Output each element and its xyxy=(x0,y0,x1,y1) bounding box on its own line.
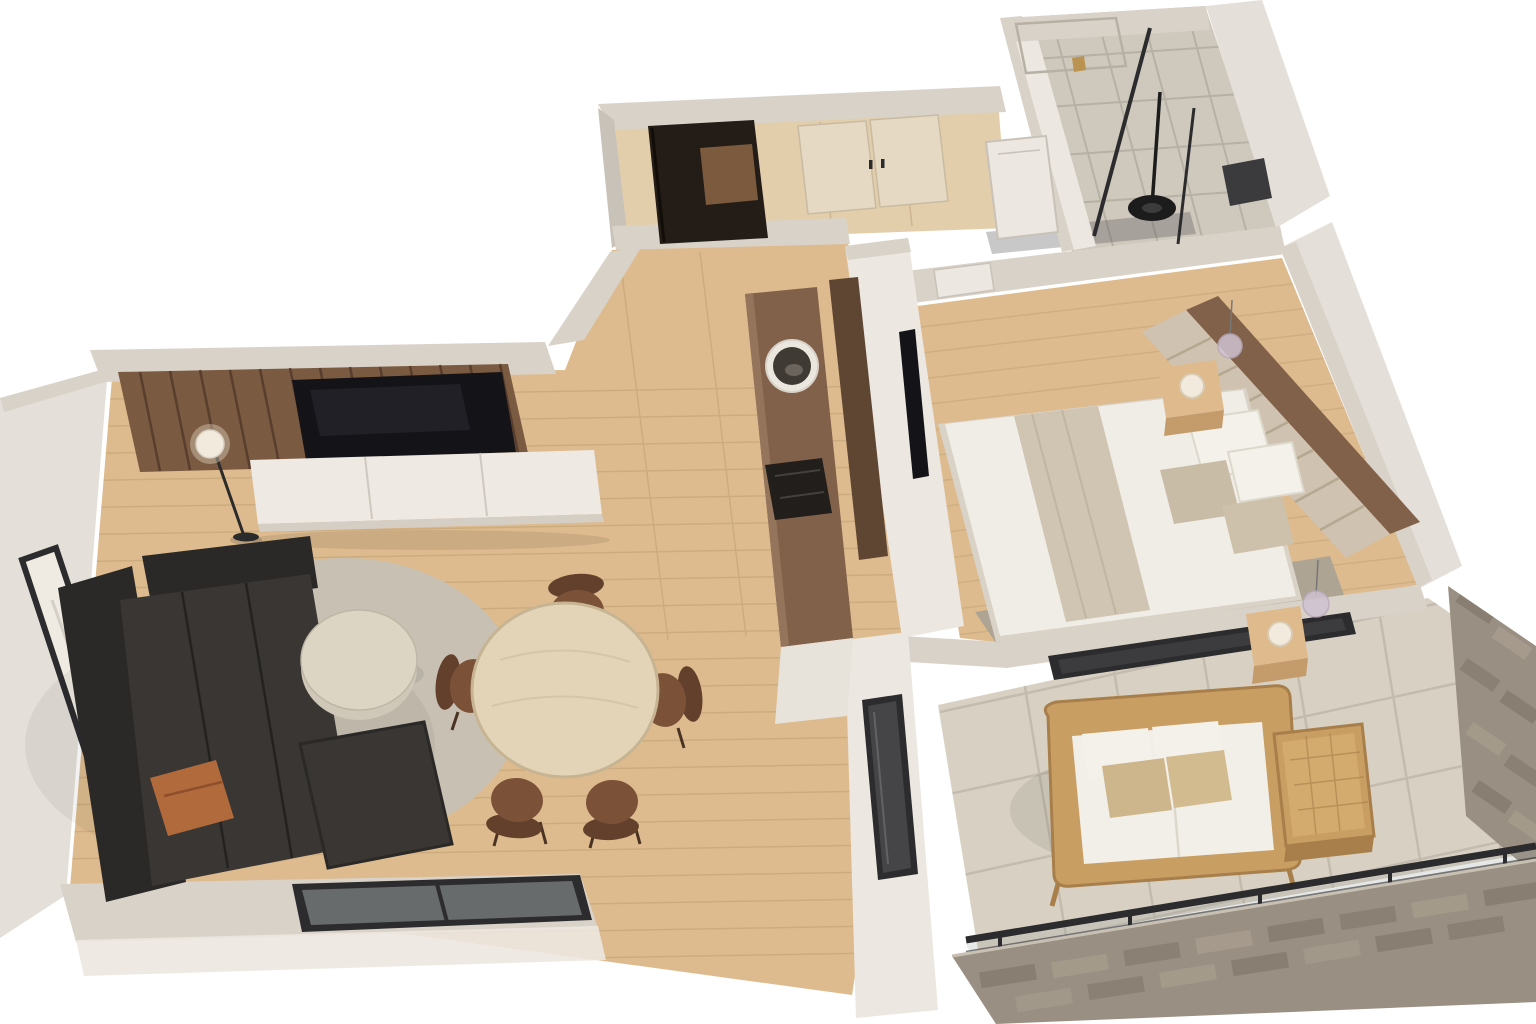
lamp-globe xyxy=(196,430,224,458)
shower-head-inner xyxy=(1142,203,1162,213)
double-bed: Double bed with greige throw xyxy=(938,388,1304,642)
tv: Wall-mounted TV xyxy=(292,372,516,466)
cooktop-surface xyxy=(765,458,832,520)
nightstand-upper: Oak nightstand with dome lamp xyxy=(1158,360,1224,436)
table-lamp xyxy=(1268,622,1292,646)
pendant-globe xyxy=(1218,334,1242,358)
bath-vent-window: Bathroom vent window xyxy=(1222,158,1272,206)
lamp-base xyxy=(233,533,259,542)
pillow-tan-2 xyxy=(1166,750,1232,808)
rattan-loveseat: Rattan loveseat with white cushions xyxy=(1045,686,1300,906)
wardrobe-handle-left xyxy=(869,160,873,169)
sofa-chaise xyxy=(300,722,452,868)
dining-table-top xyxy=(472,603,658,777)
media-console: Floating media console xyxy=(250,450,610,550)
tv-reflection xyxy=(310,384,470,436)
coffee-table-top xyxy=(301,610,417,710)
bed-pillow-taupe-2 xyxy=(1222,496,1294,554)
kitchen-lower-cabinet xyxy=(775,638,853,724)
entry-cabinet: Entry cabinet xyxy=(700,144,758,205)
kitchen-sink: Round vessel basin xyxy=(766,340,818,392)
dining-table: Round oak dining table xyxy=(472,603,658,777)
wardrobe-handle-right xyxy=(881,159,885,168)
brass-faucet: Brass tap xyxy=(1072,56,1086,72)
console-body xyxy=(250,450,602,524)
pendant-globe xyxy=(1303,591,1329,617)
floor-plan-render: 3D isometric cutaway floor plan of a one… xyxy=(0,0,1536,1024)
wardrobe-door-left xyxy=(798,121,876,214)
rattan-side-table: Rattan side table xyxy=(1274,724,1374,862)
dining-balcony-wall: Balcony door from living area xyxy=(845,632,938,1018)
nightstand-lower: Oak nightstand with dome lamp xyxy=(1246,606,1308,684)
sink-bowl-inner xyxy=(785,364,803,376)
cooktop: Built-in cooktop xyxy=(765,458,832,520)
table-lamp xyxy=(1180,374,1204,398)
bed-pillow-white-2 xyxy=(1228,442,1304,502)
entry-nook: Entry Entry cabinet xyxy=(648,120,768,244)
apartment-isometric-scene: Living room Hallway xyxy=(0,0,1536,1024)
pillow-tan-1 xyxy=(1102,758,1172,818)
